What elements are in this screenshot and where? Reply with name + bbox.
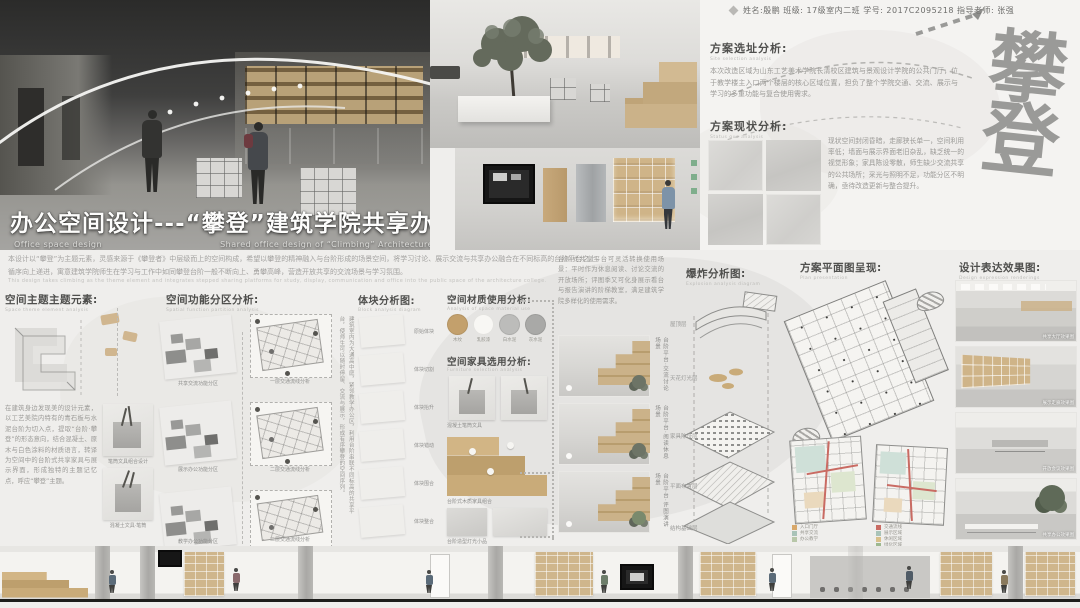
screen-content — [626, 570, 648, 584]
material-swatch — [447, 314, 468, 335]
structural-column — [298, 546, 313, 600]
poster-title-block: 办公空间设计---“攀登”建筑学院共享办公设计 Office space des… — [10, 204, 430, 249]
person-legs — [906, 581, 912, 589]
concrete-box — [113, 422, 141, 448]
legend-swatch — [792, 531, 797, 536]
person-body — [426, 575, 433, 585]
screen-content — [489, 170, 529, 198]
site-photo — [708, 140, 763, 191]
backpack — [244, 134, 253, 148]
scene-tree — [632, 375, 646, 389]
flow-plan-diagram — [250, 402, 332, 466]
person-body — [601, 575, 608, 585]
block-diagram — [359, 314, 405, 348]
block-caption: 原始体块 — [406, 328, 442, 335]
diamond-icon — [729, 6, 739, 16]
person-figure — [1000, 570, 1008, 593]
person-head — [770, 568, 774, 572]
furniture-caption: 台阶式木质家具组合 — [447, 498, 547, 505]
green-signage-chip — [691, 160, 697, 166]
wood-shelf-section — [184, 552, 224, 596]
render-photo: 共享大厅效果图 — [955, 280, 1077, 342]
section-screen — [158, 550, 182, 567]
material-item: 灰水泥 — [525, 314, 546, 343]
zoning-heading: 空间功能分区分析: — [166, 292, 356, 307]
legend-swatch — [876, 525, 881, 530]
plans-heading-en: Plan presentation — [800, 276, 955, 281]
person-body — [662, 187, 675, 209]
site-photo — [766, 194, 821, 245]
person-body — [109, 575, 116, 585]
layer-label: 天花灯光层 — [670, 374, 698, 382]
person-head — [427, 570, 431, 574]
wood-display-section — [700, 552, 756, 596]
stone-element — [122, 331, 138, 343]
flow-caption: 一层交通流线分析 — [248, 378, 332, 385]
wood-steps-section — [2, 570, 88, 598]
material-label: 木纹 — [453, 337, 462, 343]
furniture-photo — [449, 376, 495, 420]
scene-caption: 台阶平台·评图演讲场景 — [653, 473, 669, 533]
hero-render-corridor: 办公空间设计---“攀登”建筑学院共享办公设计 Office space des… — [0, 0, 430, 250]
material-item: 乳胶漆 — [473, 314, 494, 343]
legend-swatch — [792, 537, 797, 542]
zone-axon-diagram — [159, 314, 237, 379]
wood-display-section — [535, 552, 593, 596]
scenes-column: 台阶式共享平台可灵活转换使用场景：平时作为休息阅读、讨论交流的开放场所；评图季又… — [558, 255, 666, 545]
concrete-box — [459, 390, 485, 414]
person-head — [907, 566, 911, 570]
white-mug — [487, 468, 494, 475]
site-photo — [766, 140, 821, 191]
flow-plan-diagram — [250, 314, 332, 378]
legend-swatch — [792, 525, 797, 530]
person-legs — [145, 158, 159, 192]
penholder-photo — [103, 468, 153, 520]
zone-caption: 共享交流功能分区 — [160, 380, 236, 387]
legend-item: 办公教学 — [792, 536, 818, 542]
materials-heading-en: Analysis of space material use — [447, 307, 555, 312]
legend-swatch — [876, 537, 881, 542]
layer-label: 屋顶层 — [670, 321, 687, 328]
person-legs — [769, 583, 775, 591]
penholder-caption: 混凝土文具·笔筒 — [101, 522, 155, 529]
renders-heading: 设计表达效果图: — [959, 260, 1078, 275]
poster-title-en-left: Office space design — [14, 240, 102, 249]
site-heading-en: Site selection analysis — [710, 57, 787, 62]
dotted-connector — [520, 472, 554, 474]
wood-stepped-seating — [625, 40, 697, 128]
person-figure — [905, 566, 913, 589]
layer-label: 结构基础层 — [670, 524, 698, 532]
person-legs — [1001, 585, 1007, 593]
block-caption: 体块切割 — [406, 366, 442, 373]
person-head — [148, 110, 157, 119]
door-section — [430, 554, 450, 598]
structural-column — [488, 546, 503, 600]
site-body: 本次改造区域为山东工艺美术学院长清校区建筑与景观设计学院的公共门厅，位于教学楼主… — [710, 66, 958, 101]
person-body — [233, 573, 240, 583]
corridor-display-render — [455, 148, 700, 250]
zoning-note: 建筑室内为大通高中庭，紧邻教学办公区，利用台阶串联不同标高的共享平台，使师生可以… — [336, 316, 355, 516]
person-head — [665, 180, 671, 186]
explosion-column: 爆炸分析图: Explosion analysis diagram 屋顶层 天花… — [668, 266, 788, 546]
scene-tree — [632, 511, 646, 525]
poster-title-en-right: Shared office design of “Climbing” Archi… — [220, 240, 430, 249]
site-section: 方案选址分析: Site selection analysis — [710, 40, 787, 62]
renders-column: 设计表达效果图: Design expression renderings 共享… — [953, 260, 1078, 546]
stair-hatch — [914, 288, 946, 314]
legend-b: 交通流线 展示区域 休闲区域 绿化区域 — [876, 524, 902, 548]
furniture-heading-en: Furniture selection analysis — [447, 368, 523, 373]
layer-label: 平面布置层 — [670, 482, 698, 490]
green-signage-chip — [691, 188, 697, 194]
person-legs — [601, 585, 607, 593]
wood-display-section — [940, 552, 992, 596]
info-screen — [483, 164, 535, 204]
site-heading: 方案选址分析: — [710, 40, 787, 56]
zone-caption: 教学办公功能分区 — [160, 538, 236, 545]
person-body — [1001, 575, 1008, 585]
block-caption: 体块抬升 — [406, 404, 442, 411]
status-heading: 方案现状分析: — [710, 118, 787, 134]
render-photo: 共享办公效果图 — [955, 478, 1077, 540]
render-photo: 展示走廊效果图 — [955, 346, 1077, 408]
structural-column — [848, 546, 863, 600]
penholder-photo — [103, 404, 153, 456]
person-head — [602, 570, 606, 574]
layer-label: 家具陈设层 — [670, 432, 698, 440]
structural-column — [140, 546, 155, 600]
person-legs — [109, 585, 115, 593]
person-figure — [768, 568, 776, 591]
person-body — [769, 573, 776, 583]
lobby-render — [430, 0, 700, 148]
explode-heading: 爆炸分析图: — [686, 266, 788, 281]
blocks-heading: 体块分析图: — [358, 292, 444, 307]
person-legs — [664, 209, 673, 229]
concrete-box — [115, 484, 141, 512]
status-section: 方案现状分析: Status quo analysis — [710, 118, 787, 140]
person-body — [142, 120, 162, 158]
flow-line — [907, 449, 912, 521]
zoning-column: 空间功能分区分析: Spatial function partition ana… — [160, 292, 356, 544]
floor-plan-level2 — [789, 436, 867, 525]
furniture-photo — [447, 508, 487, 536]
render-caption: 共享大厅效果图 — [1043, 334, 1075, 340]
render-photo: 开放会议效果图 — [955, 412, 1077, 474]
theme-heading-en: Space theme element analysis — [5, 308, 157, 313]
render-caption: 共享办公效果图 — [1043, 532, 1075, 538]
section-screen — [620, 564, 654, 590]
block-caption: 体块围合 — [406, 480, 442, 487]
person-head — [1002, 570, 1006, 574]
floor-plan-main — [784, 280, 935, 442]
dotted-connector — [520, 300, 554, 302]
white-cube-table — [550, 78, 576, 100]
material-swatch — [473, 314, 494, 335]
white-cube-table — [590, 84, 610, 102]
dotted-connector — [552, 300, 554, 540]
flow-caption: 三层交通流线分析 — [248, 536, 332, 543]
material-item: 白水泥 — [499, 314, 520, 343]
scenes-body: 台阶式共享平台可灵活转换使用场景：平时作为休息阅读、讨论交流的开放场所；评图季又… — [558, 255, 664, 307]
person-head — [110, 570, 114, 574]
flow-line — [887, 484, 937, 492]
person-body — [906, 571, 913, 581]
legend-swatch — [876, 531, 881, 536]
person-legs — [251, 170, 265, 204]
dotted-connector — [520, 536, 554, 538]
student-info: 姓名:殷鹏 班级: 17级室内二班 学号: 2017C2095218 指导老师:… — [743, 5, 1014, 16]
white-planter-box — [458, 96, 550, 122]
material-label: 乳胶漆 — [477, 337, 491, 343]
scene-caption: 台阶平台·交流讨论场景 — [653, 337, 669, 397]
person-figure — [600, 570, 608, 593]
material-swatches: 木纹 乳胶漆 白水泥 灰水泥 — [447, 314, 546, 343]
student-info-row: 姓名:殷鹏 班级: 17级室内二班 学号: 2017C2095218 指导老师:… — [730, 5, 1014, 16]
stone-element — [105, 348, 117, 356]
legend-a: 入口门厅 共享交流 办公教学 — [792, 524, 818, 542]
person-legs — [426, 585, 432, 593]
block-diagram — [359, 428, 405, 462]
furniture-photo — [493, 508, 547, 536]
theme-column: 空间主题主题元素: Space theme element analysis 在… — [5, 292, 157, 544]
material-label: 白水泥 — [503, 337, 517, 343]
person-head — [234, 568, 238, 572]
zone-axon-diagram — [159, 400, 237, 465]
block-caption: 体块整合 — [406, 518, 442, 525]
material-label: 灰水泥 — [529, 337, 543, 343]
zone-caption: 展示办公功能分区 — [160, 466, 236, 473]
render-caption: 开放会议效果图 — [1043, 466, 1075, 472]
person-figure — [108, 570, 116, 593]
site-photo — [708, 194, 763, 245]
flow-line — [807, 464, 858, 475]
person-figure — [248, 122, 268, 204]
penholder-caption: 笔筒文具组合设计 — [101, 458, 155, 465]
structural-column — [1008, 546, 1023, 600]
theme-heading: 空间主题主题元素: — [5, 292, 157, 307]
white-mug — [469, 448, 476, 455]
scene-render — [558, 335, 650, 397]
scene-render — [558, 471, 650, 533]
block-diagram — [359, 504, 405, 538]
theme-body: 在建筑身边发现美的设计元素，以工艺美院内特有的青石板与水泥台阶为切入点，提取“台… — [5, 404, 97, 487]
scene-tree — [632, 443, 646, 457]
poster-title: 办公空间设计---“攀登”建筑学院共享办公设计 — [10, 204, 430, 238]
guide-line — [117, 308, 118, 396]
scene-render — [558, 403, 650, 465]
concrete-box — [511, 390, 537, 414]
furniture-heading: 空间家具选用分析: — [447, 354, 531, 368]
status-body: 现状空间封闭昏暗，走廊狭长单一，空间利用率低；墙面与展示界面老旧杂乱，缺乏统一的… — [828, 136, 964, 192]
render-caption: 展示走廊效果图 — [1043, 400, 1075, 406]
materials-heading: 空间材质使用分析: — [447, 292, 555, 306]
person-figure — [425, 570, 433, 593]
blocks-column: 体块分析图: Block analysis diagram 原始体块 体块切割 … — [358, 292, 444, 544]
explosion-axon-diagram: 屋顶层 天花灯光层 家具陈设层 平面布置层 结构基础层 — [670, 286, 786, 544]
material-swatch — [499, 314, 520, 335]
flow-line — [822, 441, 829, 519]
wood-door — [543, 168, 567, 222]
guide-line — [242, 332, 243, 544]
legend-label: 办公教学 — [800, 536, 818, 542]
theme-step-diagram — [5, 316, 97, 402]
material-swatch — [525, 314, 546, 335]
section-elevation-strip — [0, 546, 1080, 600]
block-diagram — [359, 390, 405, 424]
blocks-heading-en: Block analysis diagram — [358, 308, 444, 313]
block-caption: 体块错动 — [406, 442, 442, 449]
white-mug — [507, 442, 514, 449]
furniture-caption: 台阶造型灯光小品 — [447, 538, 547, 545]
floor-plan-level3 — [872, 444, 948, 526]
bench — [430, 66, 460, 79]
plans-heading: 方案平面图呈现: — [800, 260, 955, 275]
stepped-wood-furniture — [447, 434, 547, 496]
design-poster: 办公空间设计---“攀登”建筑学院共享办公设计 Office space des… — [0, 0, 1080, 608]
person-figure — [142, 110, 162, 192]
plans-column: 方案平面图呈现: Plan presentation 入口门厅 共享交流 办公教… — [790, 260, 955, 546]
elevator-door — [576, 164, 606, 222]
zoning-heading-en: Spatial function partition analysis — [166, 308, 356, 313]
person-figure — [661, 180, 675, 229]
flow-caption: 二层交通流线分析 — [248, 466, 332, 473]
green-signage-chip — [691, 174, 697, 180]
furniture-caption: 混凝土笔筒文具 — [447, 422, 547, 429]
materials-column: 空间材质使用分析: Analysis of space material use… — [447, 292, 555, 544]
info-panel: 姓名:殷鹏 班级: 17级室内二班 学号: 2017C2095218 指导老师:… — [700, 0, 1080, 250]
person-legs — [233, 583, 239, 591]
structural-column — [678, 546, 693, 600]
block-diagram — [359, 352, 405, 386]
block-diagram — [359, 466, 405, 500]
material-item: 木纹 — [447, 314, 468, 343]
person-head — [254, 122, 263, 131]
person-figure — [232, 568, 240, 591]
scene-caption: 台阶平台·阅读休息场景 — [653, 405, 669, 465]
furniture-photo — [501, 376, 547, 420]
section-ground-line — [0, 599, 1080, 602]
wood-display-section — [1025, 552, 1075, 596]
